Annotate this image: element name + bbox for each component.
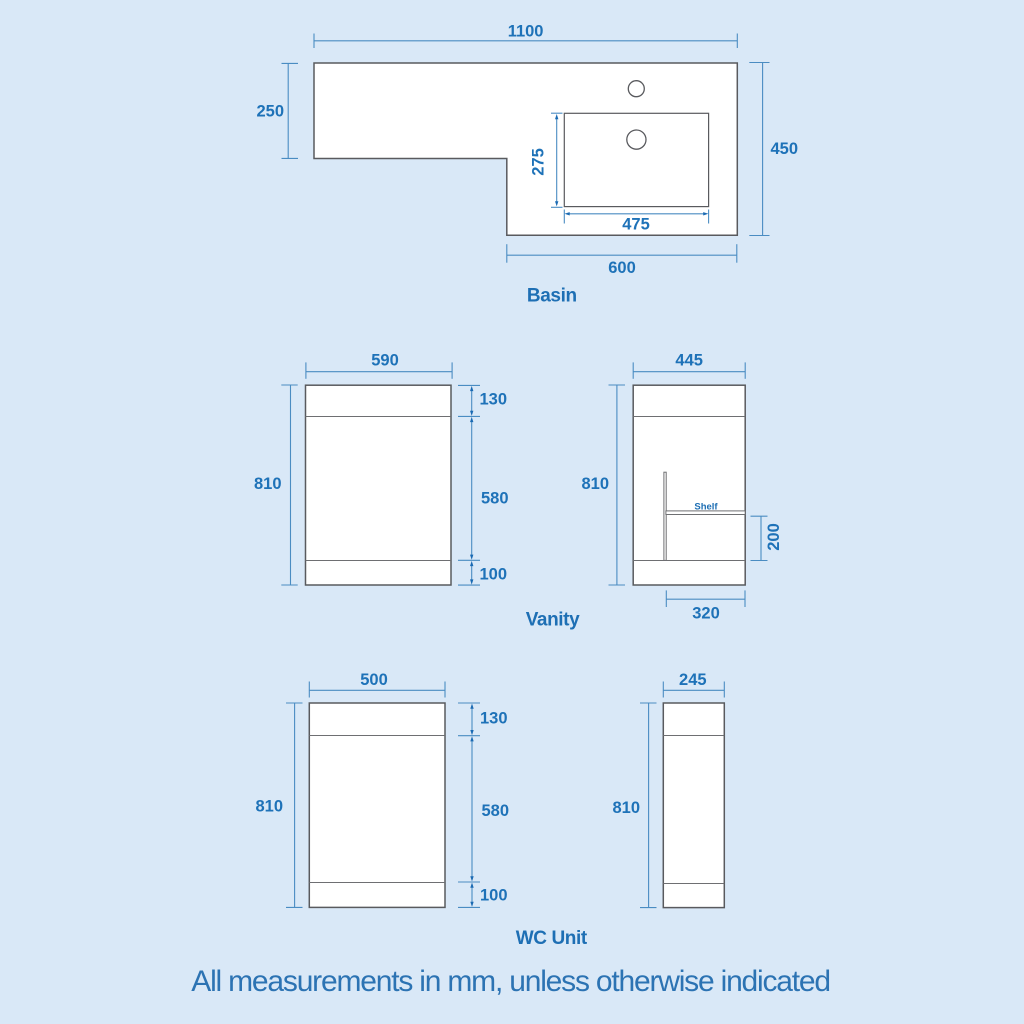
svg-text:WC Unit: WC Unit: [516, 928, 588, 949]
svg-text:130: 130: [480, 709, 508, 727]
svg-text:810: 810: [581, 475, 609, 493]
svg-text:810: 810: [254, 475, 282, 493]
svg-text:275: 275: [530, 148, 548, 176]
svg-text:810: 810: [255, 798, 283, 816]
svg-text:445: 445: [675, 352, 703, 370]
svg-text:580: 580: [482, 802, 510, 820]
svg-text:All measurements in mm, unless: All measurements in mm, unless otherwise…: [191, 965, 830, 998]
svg-text:250: 250: [256, 103, 284, 121]
svg-text:320: 320: [692, 605, 720, 623]
svg-text:130: 130: [480, 390, 508, 408]
svg-text:475: 475: [622, 216, 650, 234]
svg-text:245: 245: [679, 671, 707, 689]
svg-text:590: 590: [371, 352, 399, 370]
svg-text:100: 100: [480, 566, 508, 584]
svg-text:Vanity: Vanity: [526, 610, 580, 631]
svg-text:450: 450: [771, 140, 799, 158]
svg-text:200: 200: [765, 523, 783, 551]
svg-text:Shelf: Shelf: [694, 502, 718, 513]
svg-text:100: 100: [480, 886, 508, 904]
svg-text:580: 580: [481, 490, 509, 508]
svg-text:1100: 1100: [508, 23, 544, 41]
svg-text:600: 600: [608, 259, 636, 277]
svg-text:810: 810: [612, 799, 640, 817]
svg-text:500: 500: [360, 671, 388, 689]
svg-text:Basin: Basin: [527, 286, 577, 307]
